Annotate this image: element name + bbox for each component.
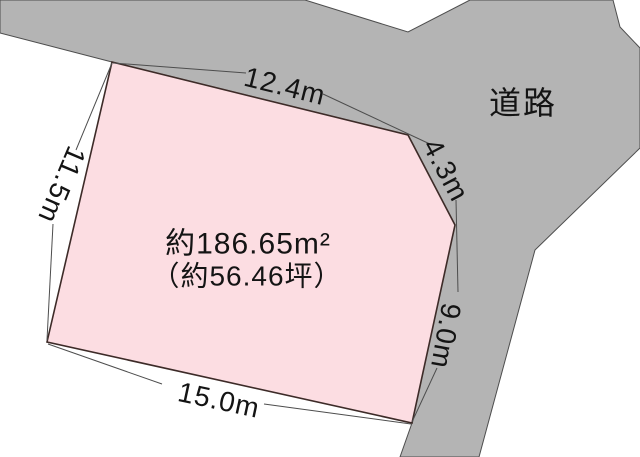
road-label: 道路 bbox=[489, 85, 557, 121]
plot-area-sqm-label: 約186.65m² bbox=[165, 228, 331, 261]
plot-diagram-page: 12.4m 4.3m 9.0m 15.0m 11.5m 約186.65m² （約… bbox=[0, 0, 640, 457]
plot-diagram: 12.4m 4.3m 9.0m 15.0m 11.5m 約186.65m² （約… bbox=[0, 0, 640, 457]
plot-area-tsubo-label: （約56.46坪） bbox=[151, 261, 342, 292]
